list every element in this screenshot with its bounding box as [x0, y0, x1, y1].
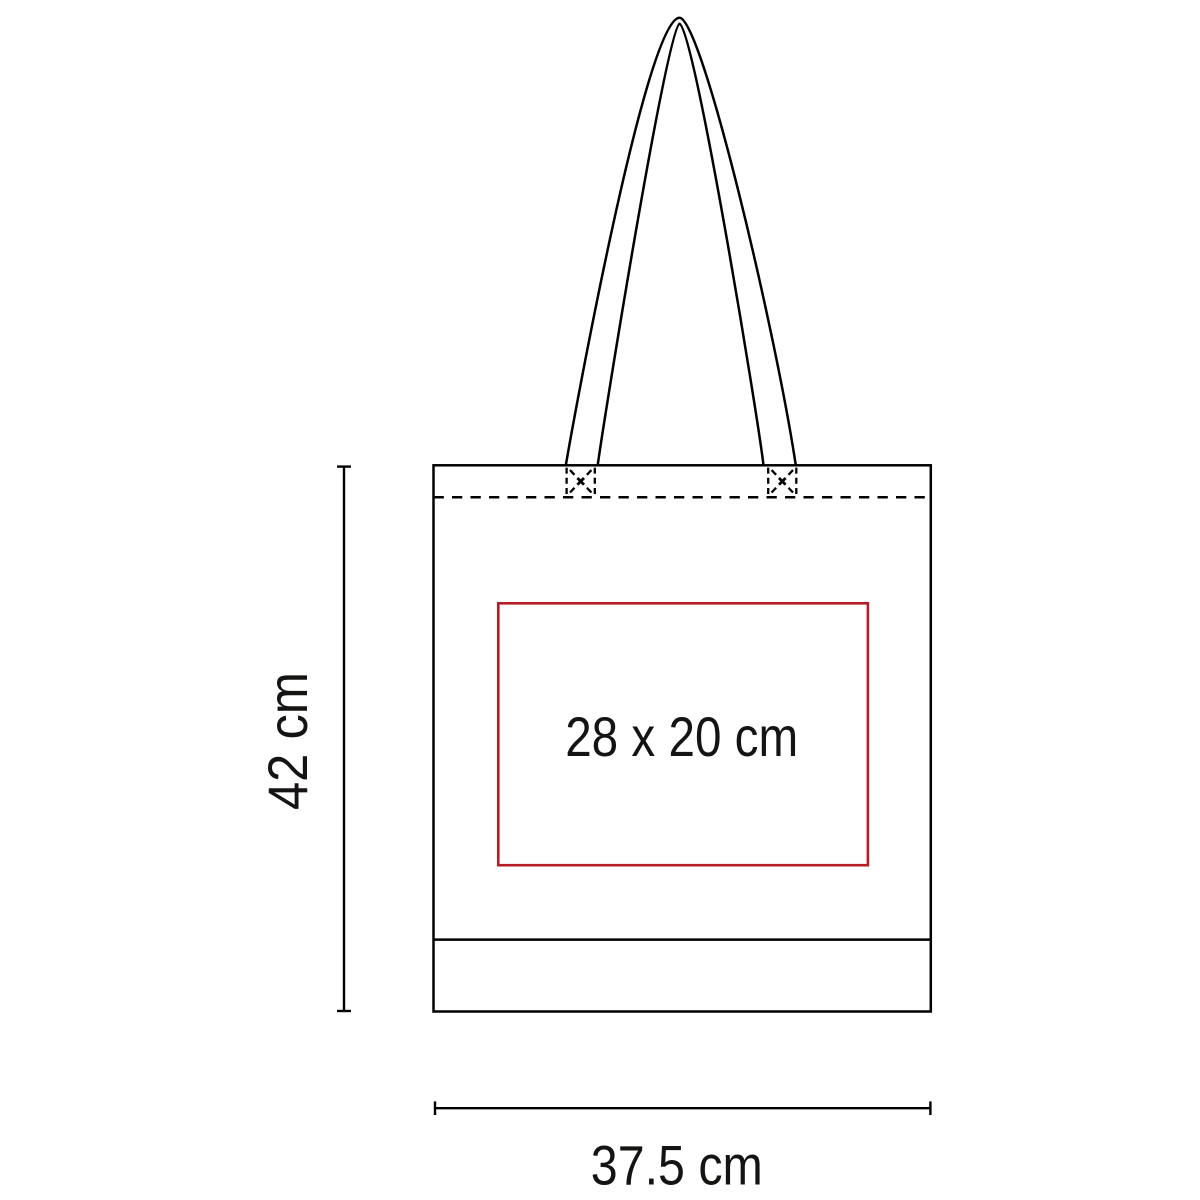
svg-text:28 x 20 cm: 28 x 20 cm: [565, 705, 798, 768]
svg-text:37.5 cm: 37.5 cm: [591, 1134, 763, 1197]
svg-text:42 cm: 42 cm: [256, 672, 319, 810]
